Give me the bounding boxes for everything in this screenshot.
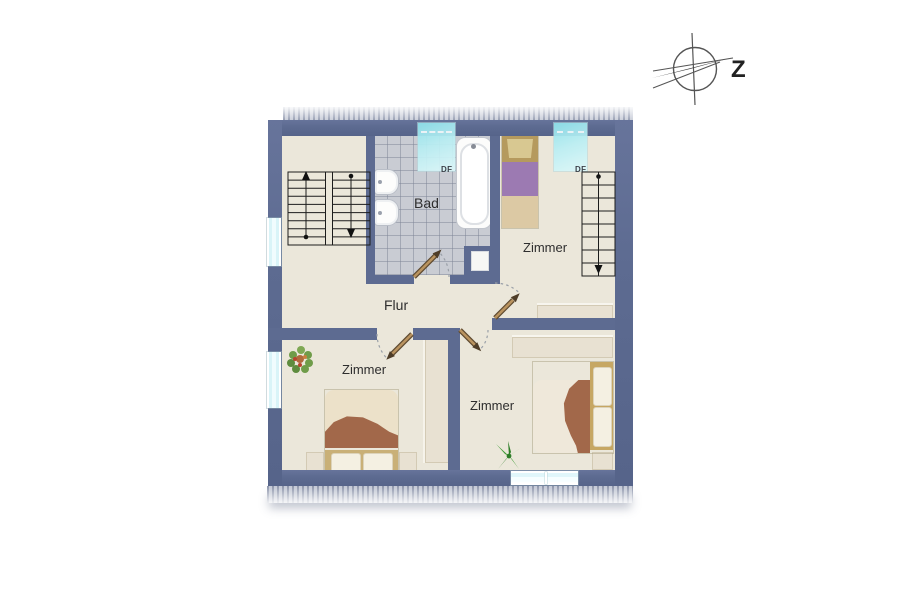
room-label-hallway: Flur	[384, 298, 408, 312]
compass-label: Z	[731, 56, 746, 83]
room-label-bedroom-bl: Zimmer	[342, 363, 386, 376]
skylight-label-bedroom: DF	[575, 166, 586, 174]
floorplan-canvas: Z Bad Flur Zimmer Zimmer Zimmer DF DF	[0, 0, 900, 599]
staircase-main	[288, 171, 370, 245]
compass-icon: Z	[652, 33, 746, 105]
room-label-bedroom-br: Zimmer	[470, 399, 514, 412]
room-label-bedroom-tr: Zimmer	[523, 241, 567, 254]
door-bedroom-bottom-right	[460, 330, 488, 351]
linework-overlay: Z	[0, 0, 900, 599]
door-bedroom-top-right	[495, 283, 520, 318]
staircase-bedroom	[582, 172, 615, 276]
room-label-bathroom: Bad	[414, 196, 439, 210]
door-bathroom	[414, 250, 449, 278]
skylight-label-bathroom: DF	[441, 166, 452, 174]
door-bedroom-bottom-left	[377, 334, 412, 360]
